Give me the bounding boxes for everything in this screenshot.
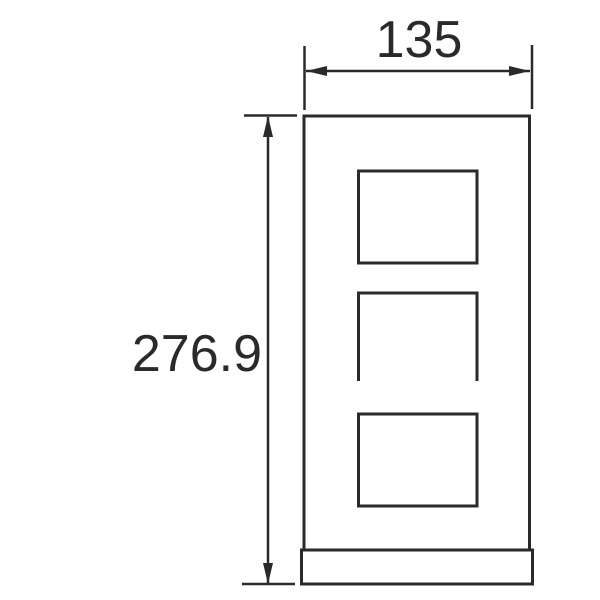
height-dimension-label: 276.9	[132, 325, 262, 383]
width-dimension-label: 135	[376, 11, 463, 69]
width-dimension: 135	[305, 11, 533, 110]
plate-front-view	[302, 116, 533, 584]
width-arrowhead-right-icon	[509, 66, 530, 76]
module-opening-bottom	[359, 414, 478, 506]
height-arrowhead-bottom-icon	[263, 563, 273, 584]
module-opening-top	[359, 171, 478, 263]
width-arrowhead-left-icon	[306, 66, 327, 76]
plate-base-strip	[302, 550, 533, 584]
height-arrowhead-top-icon	[263, 116, 273, 137]
module-opening-middle	[359, 293, 478, 381]
dimension-drawing-canvas: 135 276.9	[0, 0, 600, 600]
plate-body-outline	[304, 116, 530, 550]
plate-dimension-drawing: 135 276.9	[0, 0, 600, 600]
height-dimension: 276.9	[132, 116, 297, 585]
